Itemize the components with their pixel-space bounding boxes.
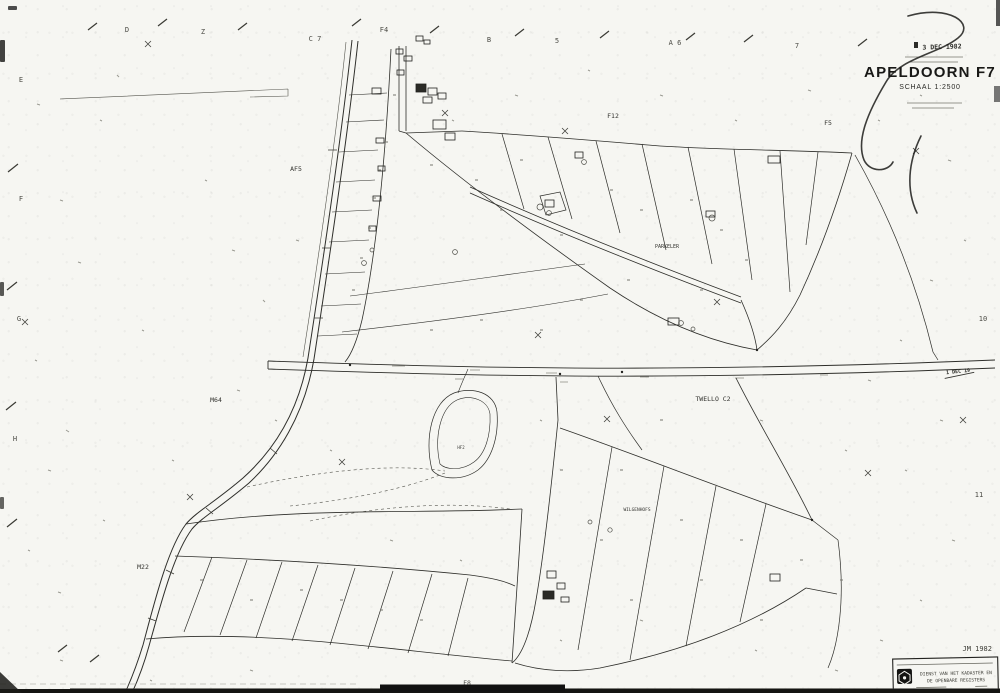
- building-footprints: [369, 36, 780, 602]
- stamp-ink-blot: [914, 42, 918, 48]
- margin-label-top-5: B: [487, 36, 491, 44]
- map-area-labels: AF5 F12 F5 M64 TWELLO C2 PARKELER M22 HF…: [137, 112, 832, 571]
- scanner-edge-band: [0, 672, 1000, 693]
- footer-block: JM 1982 DIENST VAN HET KADASTER EN DE OP…: [893, 645, 999, 693]
- kadaster-agency-line1: DIENST VAN HET KADASTER EN: [920, 670, 992, 678]
- margin-label-left-3: G: [17, 315, 21, 323]
- map-label-twello-c2: TWELLO C2: [695, 395, 730, 403]
- survey-cross-marks: [22, 41, 966, 500]
- map-label-f12: F12: [607, 112, 619, 120]
- parcel-number-marks: [200, 95, 843, 620]
- edge-stamp-text: 1 DEC 19: [946, 368, 971, 376]
- kadaster-logo-icon: [897, 669, 912, 685]
- margin-label-top-4: F4: [380, 26, 388, 34]
- margin-label-top-1: D: [125, 26, 129, 34]
- map-label-wilgenhofs: WILGENHOFS: [623, 507, 650, 513]
- margin-label-left-4: H: [13, 435, 17, 443]
- title-block: 3 DEC 1982 APELDOORN F7 SCHAAL 1:2500: [861, 12, 995, 213]
- grid-tick-marks: [6, 19, 867, 662]
- cadastral-map-sheet: D Z C 7 F4 B 5 A 6 7 E F G H 10 11 F8 AF…: [0, 0, 1000, 693]
- map-image: D Z C 7 F4 B 5 A 6 7 E F G H 10 11 F8 AF…: [0, 0, 1000, 693]
- footer-year-note: JM 1982: [962, 645, 992, 653]
- margin-label-right-1: 10: [979, 315, 987, 323]
- margin-label-left-2: F: [19, 195, 23, 203]
- margin-label-top-7: A 6: [669, 39, 682, 47]
- map-scale: SCHAAL 1:2500: [899, 84, 961, 91]
- scan-noise: [0, 0, 1000, 681]
- map-label-m22: M22: [137, 563, 149, 571]
- kadaster-agency-line2: DE OPENBARE REGISTERS: [927, 677, 985, 684]
- map-label-f5: F5: [824, 119, 832, 127]
- map-label-parkeler: PARKELER: [655, 244, 680, 250]
- map-label-af5: AF5: [290, 165, 302, 173]
- margin-label-left-1: E: [19, 76, 23, 84]
- margin-label-top-2: Z: [201, 28, 205, 36]
- map-label-m64: M64: [210, 396, 222, 404]
- margin-label-right-2: 11: [975, 491, 983, 499]
- margin-label-top-3: C 7: [309, 35, 322, 43]
- parcel-network: [60, 40, 995, 693]
- map-label-hf2: HF2: [457, 445, 465, 450]
- margin-label-top-8: 7: [795, 42, 799, 50]
- map-title: APELDOORN F7: [864, 64, 996, 81]
- margin-label-top-6: 5: [555, 37, 559, 45]
